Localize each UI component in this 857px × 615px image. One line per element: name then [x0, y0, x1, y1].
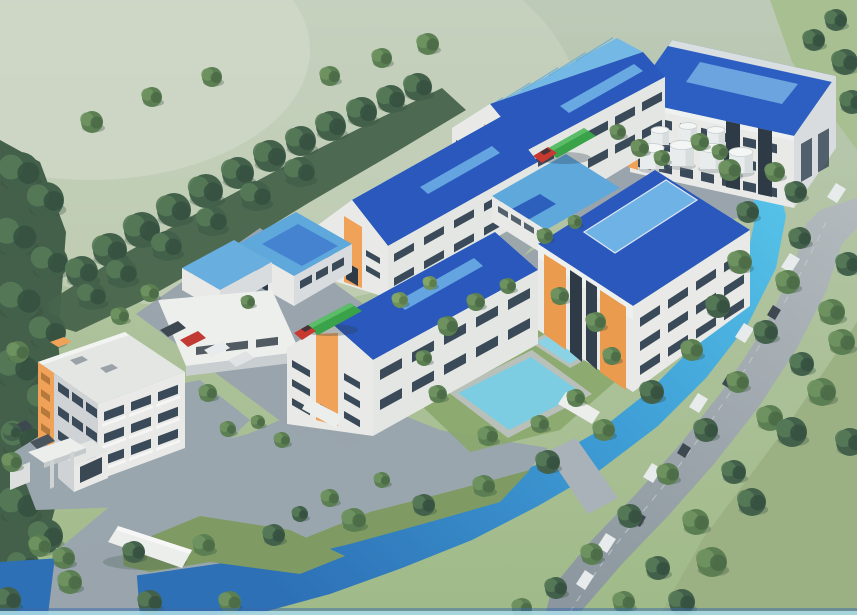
industrial-park-aerial-view — [0, 0, 857, 615]
trees-foreground — [747, 207, 759, 219]
trees-foreground — [281, 436, 290, 445]
trees-foreground — [732, 466, 745, 479]
trees-background — [17, 290, 40, 313]
trees-background — [91, 117, 103, 129]
trees-foreground — [737, 377, 749, 389]
trees-foreground — [507, 282, 516, 291]
trees-background — [254, 189, 271, 206]
trees-foreground — [429, 280, 437, 288]
trees-background — [236, 165, 254, 183]
trees-foreground — [133, 547, 145, 559]
storage-tanks-top — [729, 147, 753, 156]
trees-foreground — [11, 428, 21, 438]
trees-foreground — [840, 336, 854, 350]
trees-foreground — [691, 345, 703, 357]
trees-foreground — [423, 500, 435, 512]
trees-foreground — [704, 424, 717, 437]
trees-foreground — [799, 233, 811, 245]
trees-foreground — [595, 317, 606, 328]
trees-foreground — [830, 306, 844, 320]
trees-foreground — [795, 187, 807, 199]
trees-background — [165, 239, 182, 256]
aerial-rendering-figure — [0, 0, 857, 615]
trees-background — [13, 226, 36, 249]
trees-foreground — [381, 476, 390, 485]
trees-background — [44, 191, 64, 211]
trees-foreground — [257, 419, 265, 427]
trees-background — [329, 119, 346, 136]
trees-background — [416, 80, 431, 95]
trees-background — [172, 202, 191, 221]
trees-foreground — [764, 326, 777, 339]
trees-background — [211, 72, 222, 83]
trees-background — [120, 266, 137, 283]
trees-foreground — [483, 481, 495, 493]
trees-background — [329, 71, 340, 82]
trees-foreground — [716, 300, 729, 313]
trees-foreground — [719, 148, 728, 157]
trees-foreground — [790, 425, 807, 442]
trees-background — [427, 39, 439, 51]
trees-foreground — [656, 562, 669, 575]
trees-foreground — [575, 394, 585, 404]
trees-background — [299, 134, 316, 151]
trees-foreground — [329, 494, 339, 504]
trees-foreground — [68, 576, 81, 589]
storage-tanks-top — [651, 127, 669, 134]
trees-background — [835, 14, 847, 26]
trees-foreground — [119, 312, 129, 322]
trees-foreground — [750, 495, 765, 510]
trees-background — [268, 148, 286, 166]
trees-foreground — [11, 457, 22, 468]
trees-foreground — [710, 555, 727, 572]
trees-foreground — [559, 292, 569, 302]
trees-foreground — [207, 389, 217, 399]
trees-foreground — [273, 530, 285, 542]
trees-foreground — [628, 510, 641, 523]
storage-tanks-top — [679, 123, 697, 130]
trees-foreground — [680, 596, 694, 610]
gate-pillar-2 — [70, 451, 74, 481]
trees-foreground — [611, 352, 621, 362]
trees-foreground — [574, 219, 582, 227]
trees-foreground — [299, 510, 308, 519]
trees-foreground — [617, 128, 626, 137]
trees-foreground — [229, 597, 241, 609]
trees-background — [389, 92, 404, 107]
trees-foreground — [699, 138, 709, 148]
trees-foreground — [423, 354, 432, 363]
trees-foreground — [546, 456, 559, 469]
trees-foreground — [650, 386, 663, 399]
storage-tanks-top — [670, 140, 694, 149]
trees-foreground — [544, 232, 553, 241]
gate-pillar-1 — [50, 459, 54, 489]
trees-foreground — [39, 541, 51, 553]
trees-foreground — [800, 358, 813, 371]
trees-foreground — [591, 549, 603, 561]
trees-foreground — [786, 276, 799, 289]
trees-foreground — [774, 167, 785, 178]
trees-foreground — [149, 289, 159, 299]
trees-background — [17, 162, 39, 184]
photo-border-line — [0, 608, 857, 611]
trees-foreground — [738, 256, 751, 269]
factory-g-gable-windows-right — [344, 373, 360, 427]
trees-background — [80, 264, 98, 282]
trees-background — [48, 253, 68, 273]
trees-foreground — [603, 425, 615, 437]
trees-foreground — [729, 165, 741, 177]
trees-foreground — [352, 514, 365, 527]
trees-background — [210, 214, 227, 231]
plant-d-glazing-1 — [570, 270, 582, 362]
trees-foreground — [148, 596, 161, 609]
trees-background — [843, 56, 857, 70]
trees-background — [360, 105, 377, 122]
trees-foreground — [63, 553, 75, 565]
trees-foreground — [639, 144, 649, 154]
trees-foreground — [227, 425, 236, 434]
trees-background — [151, 92, 162, 103]
trees-foreground — [447, 321, 458, 332]
office-b-glazing-2 — [758, 128, 772, 197]
trees-foreground — [247, 299, 255, 307]
storage-tanks-top — [707, 127, 725, 134]
trees-foreground — [661, 154, 670, 163]
trees-foreground — [437, 390, 447, 400]
trees-background — [298, 165, 315, 182]
trees-foreground — [555, 583, 567, 595]
trees-background — [90, 289, 105, 304]
trees-background — [108, 242, 127, 261]
trees-foreground — [487, 431, 498, 442]
trees-background — [381, 53, 392, 64]
trees-foreground — [667, 469, 679, 481]
trees-foreground — [539, 420, 549, 430]
trees-foreground — [6, 594, 20, 608]
trees-foreground — [475, 298, 485, 308]
trees-foreground — [694, 516, 708, 530]
trees-background — [813, 35, 825, 47]
trees-foreground — [17, 347, 29, 359]
trees-foreground — [623, 597, 635, 609]
trees-foreground — [399, 296, 408, 305]
trees-background — [204, 183, 223, 202]
scene-layers — [0, 0, 857, 615]
trees-foreground — [203, 540, 215, 552]
photo-border-strip — [0, 611, 857, 615]
trees-foreground — [820, 385, 835, 400]
